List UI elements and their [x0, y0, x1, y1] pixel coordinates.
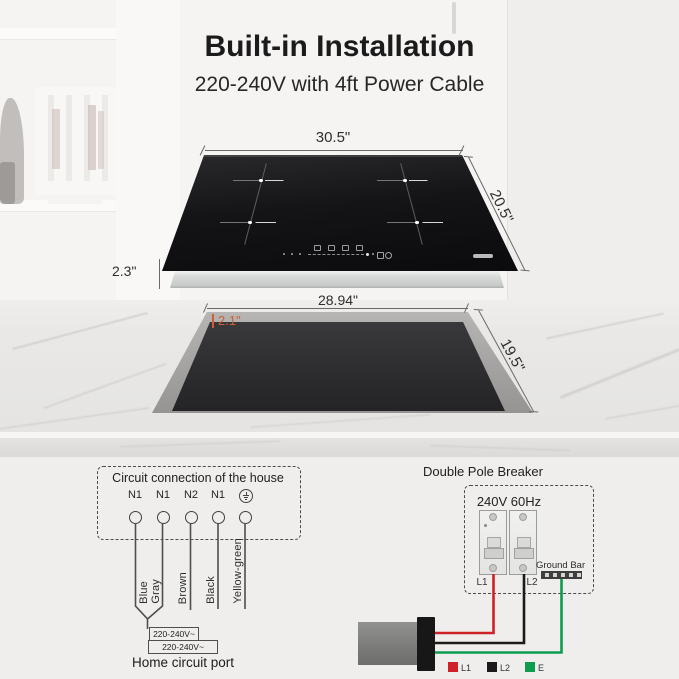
dimension-tick	[529, 411, 538, 413]
breaker-toggle	[517, 537, 531, 548]
ground-bar	[541, 571, 582, 579]
legend-label-l2: L2	[500, 663, 510, 673]
voltage-label-top: 220-240V~	[149, 627, 199, 641]
rack-slat	[66, 95, 72, 181]
burner-select-icon	[328, 245, 335, 251]
legend-swatch-l1	[448, 662, 458, 672]
burner-center-dot	[403, 179, 407, 183]
cutout-inset-label: 2.1"	[218, 313, 241, 328]
breaker-toggle	[487, 537, 501, 548]
wire-label-brown: Brown	[177, 572, 189, 604]
marble-vein	[44, 363, 167, 409]
voltage-label-bottom: 220-240V~	[148, 640, 218, 654]
books	[98, 111, 104, 169]
indicator-dot	[372, 253, 374, 255]
terminal-circle	[129, 511, 142, 524]
terminal-circle	[157, 511, 170, 524]
dimension-tick	[464, 156, 473, 158]
ground-bar-hole	[561, 573, 565, 577]
terminal-circle	[212, 511, 225, 524]
marble-vein	[430, 445, 570, 451]
marble-vein	[606, 402, 679, 419]
books	[88, 105, 96, 170]
terminal-label: N2	[176, 489, 206, 501]
breaker-module-l2	[509, 510, 537, 575]
countertop-front-face	[0, 438, 679, 458]
wire-label-yellow-green: Yellow-green	[232, 538, 244, 604]
terminal-circle	[185, 511, 198, 524]
rack-base	[48, 195, 102, 204]
terminal-label: N1	[120, 489, 150, 501]
page-subtitle: 220-240V with 4ft Power Cable	[0, 73, 679, 97]
marble-vein	[120, 440, 280, 447]
cutout-opening	[172, 322, 505, 411]
ground-bar1	[243, 495, 249, 496]
marble-vein	[0, 407, 149, 431]
burner-select-icon	[342, 245, 349, 251]
ground-bar2	[244, 497, 248, 498]
burner-select-icon	[356, 245, 363, 251]
dimension-line	[207, 308, 468, 309]
ground-bar-hole	[569, 573, 573, 577]
burner-center-dot	[248, 221, 252, 225]
book-rack	[34, 87, 116, 195]
screw-icon	[519, 513, 527, 521]
ground-bar-hole	[545, 573, 549, 577]
ground-bar-hole	[577, 573, 581, 577]
dimension-width-label: 30.5"	[283, 129, 383, 146]
indicator-dot	[283, 253, 285, 255]
breaker-title: Double Pole Breaker	[423, 464, 543, 479]
books	[52, 109, 60, 169]
dimension-line	[205, 150, 463, 151]
legend-label-e: E	[538, 663, 544, 673]
indicator-dot	[484, 524, 487, 527]
cutout-width-label: 28.94"	[288, 292, 388, 308]
dimension-height-label: 2.3"	[112, 263, 136, 279]
indicator-dot	[366, 253, 369, 256]
legend-label-l1: L1	[461, 663, 471, 673]
pole-label-l2: L2	[522, 577, 542, 588]
cooktop-body-side	[170, 271, 504, 288]
marble-vein	[560, 344, 679, 399]
pole-label-l1: L1	[472, 577, 492, 588]
breaker-module-l1	[479, 510, 507, 575]
product-installation-image: Built-in Installation 220-240V with 4ft …	[0, 0, 679, 679]
terminal-circle	[239, 511, 252, 524]
breaker-rating: 240V 60Hz	[468, 494, 550, 509]
marble-vein	[12, 312, 148, 350]
slider-strip	[308, 254, 364, 255]
wire-label-blue: Blue	[138, 581, 150, 604]
burner-select-icon	[314, 245, 321, 251]
wire-label-black: Black	[205, 576, 217, 604]
circuit-box-title: Circuit connection of the house	[97, 471, 299, 485]
home-circuit-port-caption: Home circuit port	[118, 655, 248, 670]
terminal-label: N1	[203, 489, 233, 501]
touch-control-panel	[280, 244, 396, 262]
indicator-dot	[291, 253, 293, 255]
lock-key-icon	[377, 252, 384, 259]
marble-vein	[546, 313, 664, 340]
dimension-tick	[159, 259, 160, 289]
brand-logo	[473, 254, 493, 258]
inset-dimension-tick	[212, 314, 214, 328]
screw-icon	[519, 564, 527, 572]
cooktop-glass-surface	[162, 155, 518, 271]
power-cable-gland	[417, 617, 435, 671]
screw-icon	[489, 513, 497, 521]
ground-bar3	[245, 499, 247, 500]
ground-bar-hole	[553, 573, 557, 577]
page-title: Built-in Installation	[0, 30, 679, 64]
burner-center-dot	[415, 221, 419, 225]
power-cable-box	[358, 622, 417, 665]
wire-label-gray: Gray	[150, 579, 162, 604]
burner-center-dot	[259, 179, 263, 183]
breaker-rocker	[514, 548, 534, 559]
screw-icon	[489, 564, 497, 572]
ground-bar-label: Ground Bar	[536, 560, 585, 571]
dimension-tick	[459, 145, 465, 155]
burner-cross-line	[400, 163, 423, 244]
terminal-label: N1	[148, 489, 178, 501]
indicator-dot	[299, 253, 301, 255]
earth-ground-icon	[239, 489, 253, 503]
burner-cross-line	[244, 163, 267, 244]
legend-swatch-e	[525, 662, 535, 672]
breaker-rocker	[484, 548, 504, 559]
legend-swatch-l2	[487, 662, 497, 672]
vase-silhouette	[0, 162, 15, 204]
marble-vein	[250, 414, 430, 428]
power-key-icon	[385, 252, 392, 259]
